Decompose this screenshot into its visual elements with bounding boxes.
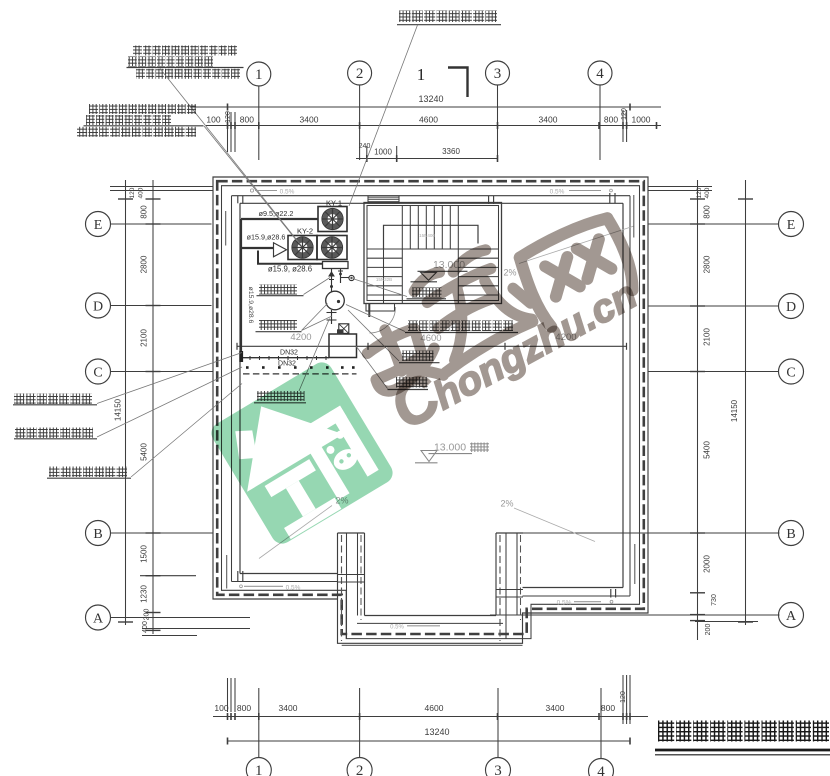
svg-text:DN32: DN32 bbox=[280, 350, 298, 357]
svg-text:1230: 1230 bbox=[140, 585, 149, 603]
svg-text:2800: 2800 bbox=[140, 255, 149, 273]
svg-text:B: B bbox=[93, 527, 102, 542]
svg-text:13240: 13240 bbox=[418, 94, 443, 104]
svg-text:1500: 1500 bbox=[140, 545, 149, 563]
svg-text:KY-2: KY-2 bbox=[297, 227, 313, 236]
svg-text:A: A bbox=[93, 612, 104, 627]
svg-text:0.5%: 0.5% bbox=[390, 625, 404, 631]
svg-text:800: 800 bbox=[703, 205, 712, 219]
svg-text:C: C bbox=[786, 366, 795, 381]
svg-text:1000: 1000 bbox=[374, 148, 392, 157]
svg-text:DN32: DN32 bbox=[278, 361, 296, 368]
svg-text:2100: 2100 bbox=[140, 329, 149, 347]
svg-text:2000: 2000 bbox=[703, 555, 712, 573]
svg-text:2800: 2800 bbox=[703, 255, 712, 273]
svg-text:14150: 14150 bbox=[730, 399, 739, 422]
svg-text:3400: 3400 bbox=[300, 115, 319, 125]
svg-text:2: 2 bbox=[356, 763, 364, 776]
svg-text:240: 240 bbox=[359, 143, 371, 150]
svg-text:800: 800 bbox=[601, 703, 615, 713]
svg-text:400: 400 bbox=[138, 187, 145, 198]
svg-text:C: C bbox=[93, 366, 102, 381]
svg-text:730: 730 bbox=[711, 594, 718, 606]
svg-text:ø15.9,ø28.6: ø15.9,ø28.6 bbox=[247, 287, 254, 324]
svg-text:4600: 4600 bbox=[425, 703, 444, 713]
svg-text:800: 800 bbox=[140, 205, 149, 219]
svg-text:4: 4 bbox=[596, 66, 604, 82]
svg-text:120: 120 bbox=[696, 187, 703, 198]
svg-text:2%: 2% bbox=[500, 499, 513, 509]
svg-text:100: 100 bbox=[214, 703, 228, 713]
svg-text:120: 120 bbox=[129, 187, 136, 198]
svg-text:E: E bbox=[787, 218, 796, 233]
svg-text:4600: 4600 bbox=[419, 115, 438, 125]
svg-text:100: 100 bbox=[206, 115, 220, 125]
svg-text:3360: 3360 bbox=[442, 147, 460, 156]
svg-text:D: D bbox=[786, 300, 796, 315]
svg-text:400: 400 bbox=[142, 621, 149, 633]
svg-text:1: 1 bbox=[255, 67, 263, 83]
svg-text:3: 3 bbox=[494, 763, 502, 776]
svg-text:2100: 2100 bbox=[703, 328, 712, 346]
svg-text:400: 400 bbox=[704, 187, 711, 198]
svg-text:0.5%: 0.5% bbox=[286, 585, 301, 592]
svg-text:E: E bbox=[94, 218, 103, 233]
svg-text:4: 4 bbox=[597, 764, 605, 776]
svg-text:ø15.9,ø28.6: ø15.9,ø28.6 bbox=[247, 233, 286, 242]
svg-text:B: B bbox=[786, 527, 795, 542]
svg-text:5400: 5400 bbox=[140, 443, 149, 461]
svg-text:5400: 5400 bbox=[703, 441, 712, 459]
svg-text:D: D bbox=[93, 300, 103, 315]
svg-text:3400: 3400 bbox=[546, 703, 565, 713]
svg-text:200: 200 bbox=[144, 609, 151, 621]
svg-text:13240: 13240 bbox=[424, 727, 449, 737]
svg-text:A: A bbox=[786, 609, 797, 624]
svg-text:1: 1 bbox=[255, 763, 263, 776]
svg-text:13.000: 13.000 bbox=[434, 442, 466, 454]
svg-text:1: 1 bbox=[417, 65, 426, 84]
svg-text:0.5%: 0.5% bbox=[280, 189, 295, 196]
svg-text:3400: 3400 bbox=[279, 703, 298, 713]
svg-text:3400: 3400 bbox=[539, 115, 558, 125]
svg-text:800: 800 bbox=[240, 115, 254, 125]
svg-text:800: 800 bbox=[237, 703, 251, 713]
svg-text:2: 2 bbox=[356, 66, 364, 82]
svg-text:1000: 1000 bbox=[632, 115, 651, 125]
svg-text:800: 800 bbox=[604, 115, 618, 125]
svg-text:0.5%: 0.5% bbox=[557, 600, 572, 607]
svg-text:ø15.9, ø28.6: ø15.9, ø28.6 bbox=[268, 265, 312, 274]
svg-text:4200: 4200 bbox=[290, 332, 311, 343]
svg-text:3: 3 bbox=[494, 66, 502, 82]
svg-text:14150: 14150 bbox=[114, 398, 123, 421]
svg-text:200: 200 bbox=[705, 624, 712, 636]
